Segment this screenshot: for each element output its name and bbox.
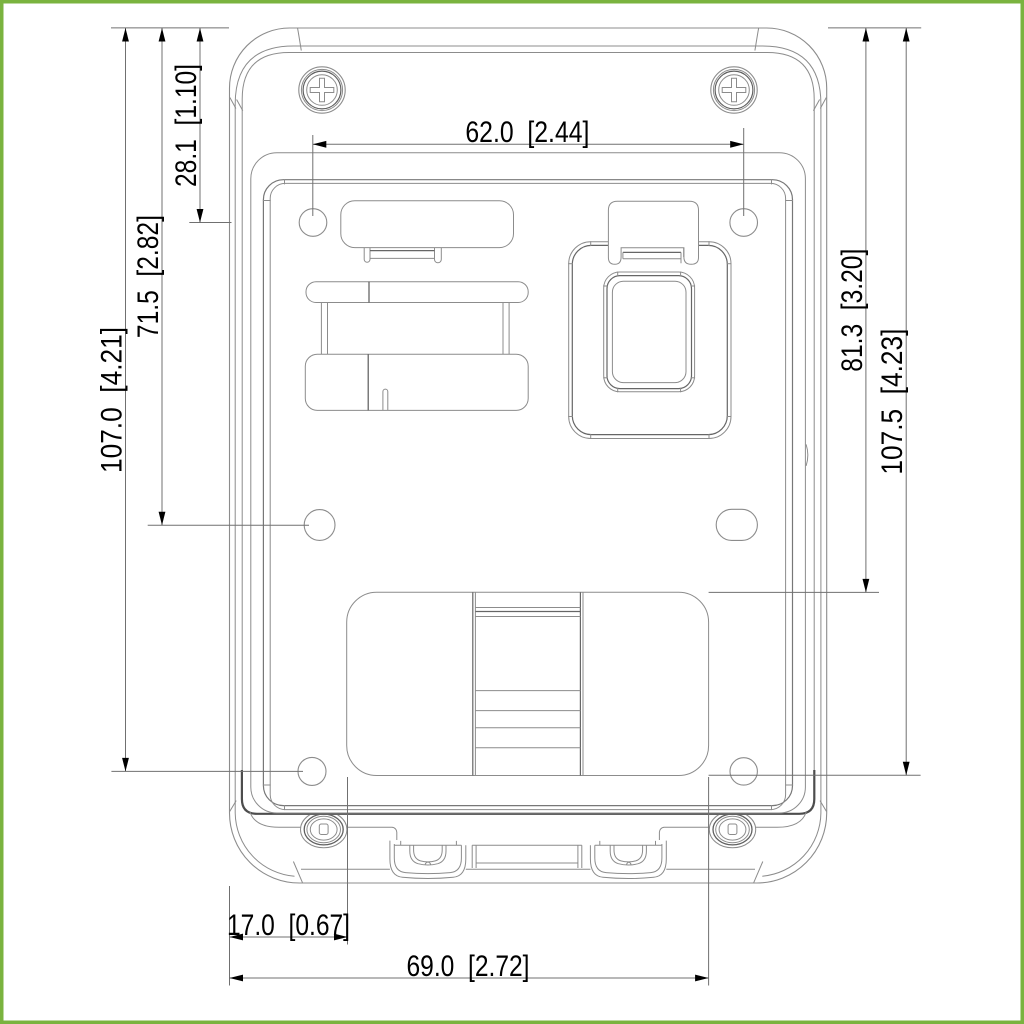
- svg-text:69.0 [2.72]: 69.0 [2.72]: [407, 950, 530, 983]
- svg-text:17.0 [0.67]: 17.0 [0.67]: [227, 909, 350, 942]
- svg-text:28.1 [1.10]: 28.1 [1.10]: [170, 64, 203, 187]
- svg-text:62.0 [2.44]: 62.0 [2.44]: [465, 116, 589, 149]
- svg-text:71.5 [2.82]: 71.5 [2.82]: [132, 215, 165, 338]
- svg-text:107.0 [4.21]: 107.0 [4.21]: [96, 327, 129, 473]
- svg-text:107.5 [4.23]: 107.5 [4.23]: [876, 329, 909, 475]
- svg-text:81.3 [3.20]: 81.3 [3.20]: [836, 249, 869, 372]
